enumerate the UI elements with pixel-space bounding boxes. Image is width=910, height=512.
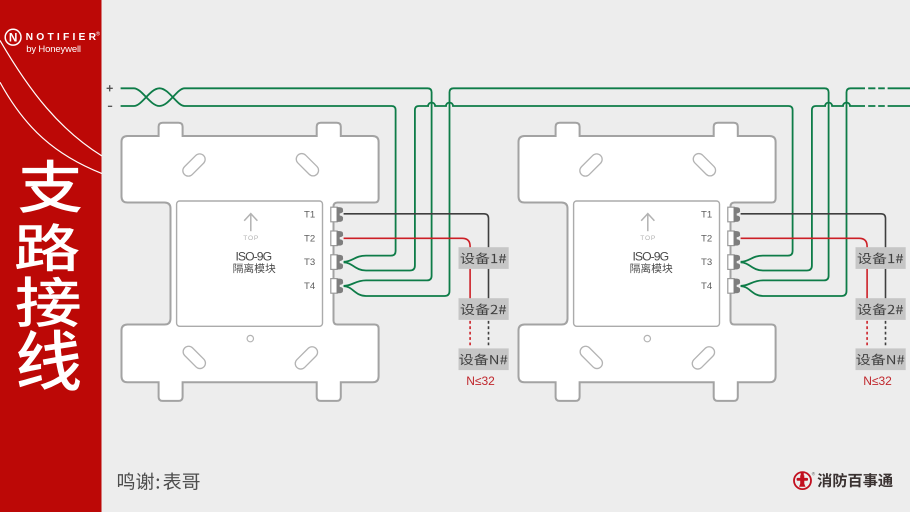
svg-text:NOTIFIER: NOTIFIER [26,32,100,43]
svg-text:T4: T4 [304,281,316,292]
svg-text:ISO-9G: ISO-9G [632,249,668,263]
svg-text:N≤32: N≤32 [466,374,495,388]
svg-text:T2: T2 [701,233,712,244]
svg-text:T1: T1 [701,210,712,221]
svg-text:T1: T1 [304,210,315,221]
svg-text:N≤32: N≤32 [863,374,892,388]
svg-text:TOP: TOP [243,235,259,242]
svg-text:N: N [9,30,18,44]
svg-text:T3: T3 [701,257,712,268]
svg-text:T3: T3 [304,257,315,268]
svg-text:T4: T4 [701,281,713,292]
svg-text:TOP: TOP [640,235,656,242]
svg-text:by Honeywell: by Honeywell [26,44,81,55]
svg-text:ISO-9G: ISO-9G [235,249,271,263]
svg-text:®: ® [96,30,101,37]
svg-text:T2: T2 [304,233,315,244]
